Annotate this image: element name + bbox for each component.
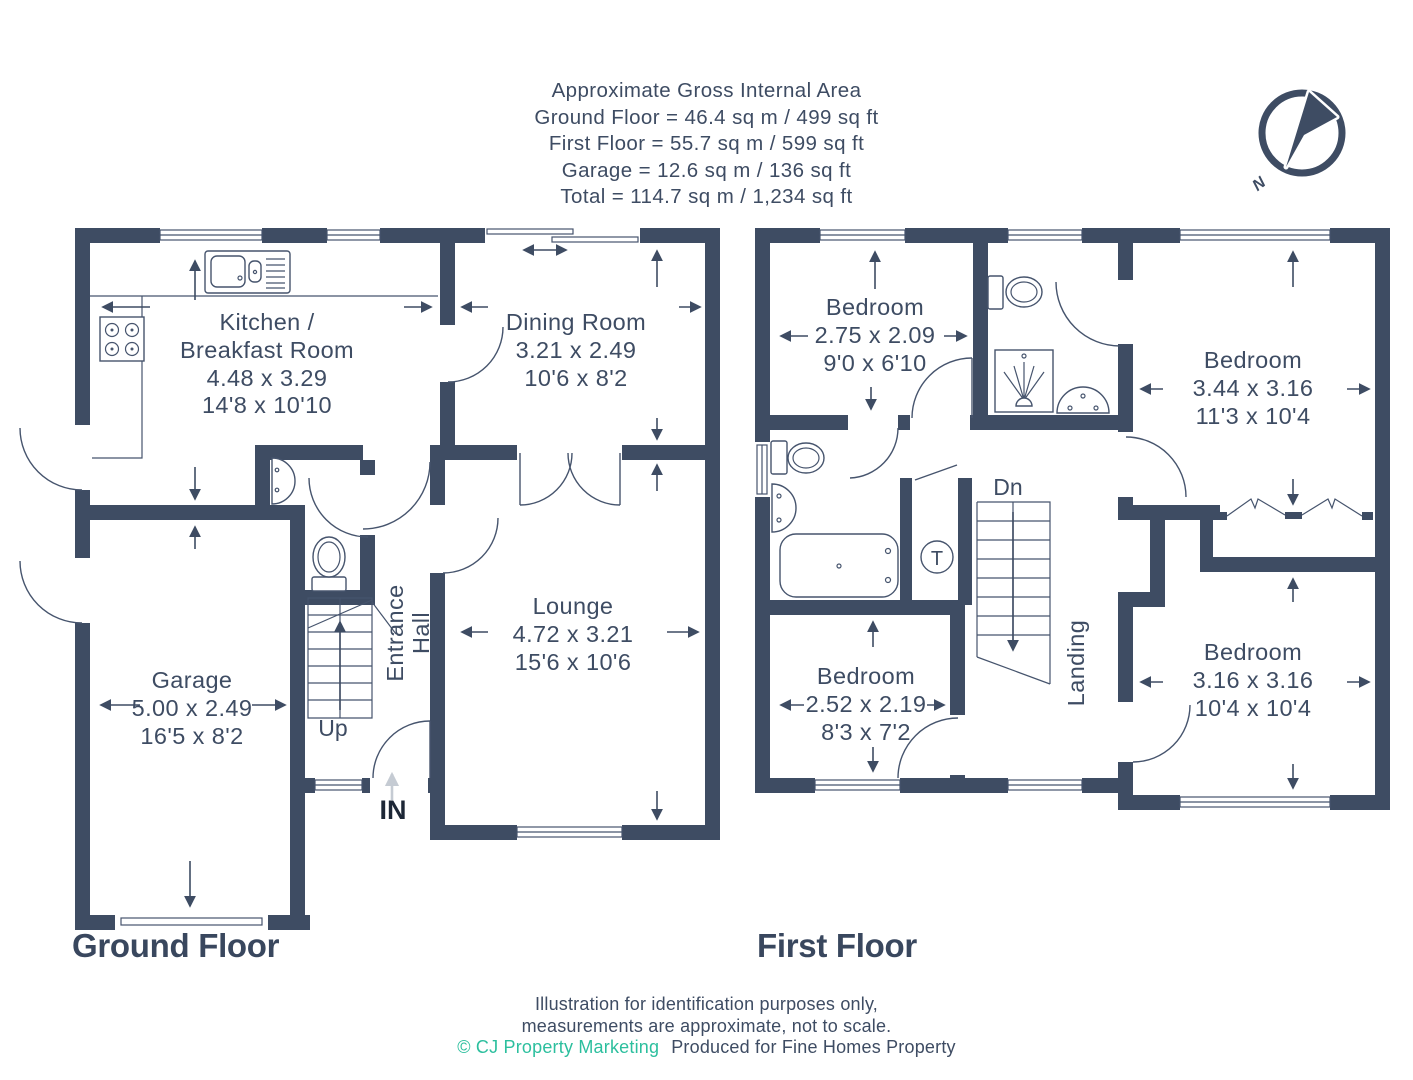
bedroom2-label: Bedroom — [1204, 347, 1302, 373]
kitchen-label: Kitchen / — [219, 309, 314, 335]
stairs-up-label: Up — [318, 715, 347, 741]
basin-icon — [772, 484, 796, 532]
first-labels: Bedroom 2.75 x 2.09 9'0 x 6'10 Bedroom 3… — [806, 294, 1314, 745]
shower-icon — [995, 350, 1053, 412]
stairs-dn-label: Dn — [993, 474, 1022, 500]
bedroom3-metric: 2.52 x 2.19 — [806, 691, 927, 717]
bedroom2-metric: 3.44 x 3.16 — [1193, 375, 1314, 401]
hall-label: Entrance — [382, 584, 408, 681]
lounge-imperial: 15'6 x 10'6 — [515, 649, 632, 675]
bedroom3-imperial: 8'3 x 7'2 — [821, 719, 911, 745]
hob-icon — [100, 317, 144, 361]
kitchen-imperial: 14'8 x 10'10 — [202, 392, 332, 418]
basin-icon — [1057, 387, 1109, 413]
hall-label-2: Hall — [408, 612, 434, 654]
ground-floor-title: Ground Floor — [72, 927, 279, 965]
credit-row: © CJ Property Marketing Produced for Fin… — [0, 1037, 1413, 1058]
dining-label: Dining Room — [506, 309, 646, 335]
garage-label: Garage — [152, 667, 233, 693]
kitchen-metric: 4.48 x 3.29 — [207, 365, 328, 391]
tank-cupboard: T — [921, 541, 953, 573]
toilet-icon — [312, 537, 346, 591]
bath-icon — [780, 534, 898, 597]
dining-imperial: 10'6 x 8'2 — [524, 365, 627, 391]
landing-label: Landing — [1063, 620, 1089, 706]
bedroom1-metric: 2.75 x 2.09 — [815, 322, 936, 348]
stairs-down — [977, 502, 1050, 684]
ground-labels: Kitchen / Breakfast Room 4.48 x 3.29 14'… — [132, 309, 646, 825]
first-floor-title: First Floor — [757, 927, 917, 965]
bedroom4-metric: 3.16 x 3.16 — [1193, 667, 1314, 693]
garage-metric: 5.00 x 2.49 — [132, 695, 253, 721]
lounge-label: Lounge — [533, 593, 614, 619]
compass-north-label: N — [1249, 174, 1269, 195]
entrance-in-label: IN — [380, 795, 407, 825]
shower-room-fixtures — [988, 276, 1109, 413]
kitchen-sink-icon — [205, 251, 290, 293]
bathroom-fixtures — [771, 441, 898, 597]
bedroom1-label: Bedroom — [826, 294, 924, 320]
credit-produced: Produced for Fine Homes Property — [671, 1037, 956, 1058]
disclaimer: Illustration for identification purposes… — [0, 994, 1413, 1037]
toilet-icon — [771, 441, 824, 474]
dining-metric: 3.21 x 2.49 — [516, 337, 637, 363]
floorplan-page: Approximate Gross Internal Area Ground F… — [0, 0, 1413, 1080]
garage-imperial: 16'5 x 8'2 — [140, 723, 243, 749]
first-floor-plan: T Bedroom — [753, 226, 1390, 812]
bedroom4-label: Bedroom — [1204, 639, 1302, 665]
ground-floor-plan: Kitchen / Breakfast Room 4.48 x 3.29 14'… — [20, 226, 720, 932]
basin-icon — [272, 458, 295, 504]
floorplan-drawing: Kitchen / Breakfast Room 4.48 x 3.29 14'… — [0, 0, 1413, 1080]
disclaimer-line2: measurements are approximate, not to sca… — [0, 1016, 1413, 1038]
lounge-metric: 4.72 x 3.21 — [513, 621, 634, 647]
tank-label: T — [931, 548, 943, 570]
cloakroom-fixtures — [272, 458, 346, 591]
bedroom3-label: Bedroom — [817, 663, 915, 689]
compass-icon: N — [1249, 92, 1342, 195]
kitchen-label-2: Breakfast Room — [180, 337, 354, 363]
toilet-icon — [988, 276, 1042, 309]
bedroom1-imperial: 9'0 x 6'10 — [823, 350, 926, 376]
bedroom4-imperial: 10'4 x 10'4 — [1195, 695, 1312, 721]
bedroom2-imperial: 11'3 x 10'4 — [1196, 403, 1311, 429]
disclaimer-line1: Illustration for identification purposes… — [0, 994, 1413, 1016]
credit-marketing: © CJ Property Marketing — [457, 1037, 659, 1058]
